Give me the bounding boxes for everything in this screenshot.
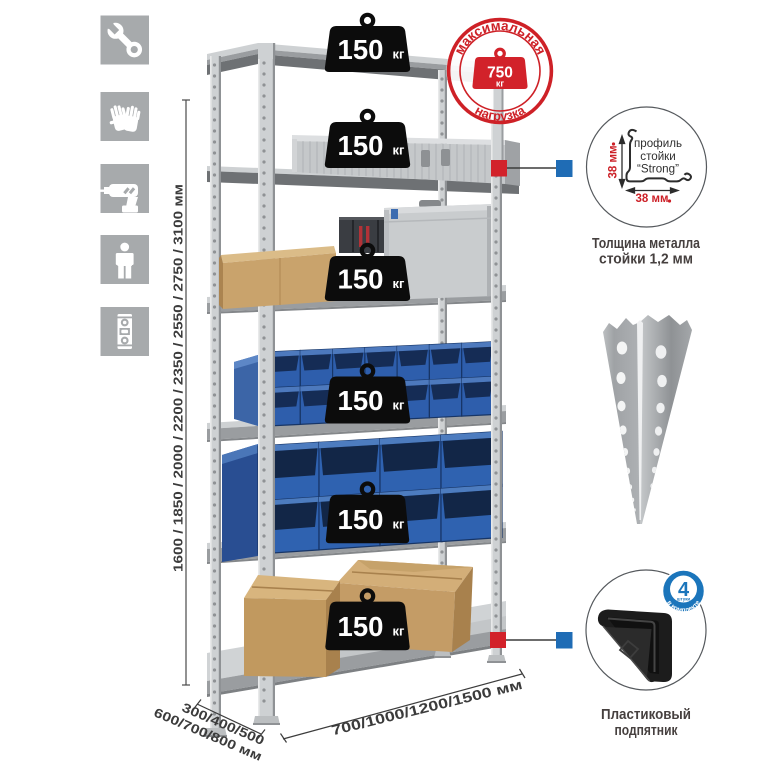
svg-text:стойки: стойки [640,150,675,163]
svg-text:штуки: штуки [677,597,691,602]
svg-text:кг: кг [393,623,406,638]
svg-text:кг: кг [393,276,406,291]
svg-text:Толщина металла: Толщина металла [592,236,701,252]
svg-text:Пластиковый: Пластиковый [601,707,691,723]
svg-text:кг: кг [496,79,505,89]
svg-text:подпятник: подпятник [615,723,679,739]
svg-text:кг: кг [393,398,406,413]
svg-text:кг: кг [393,47,406,62]
svg-text:“Strong”: “Strong” [637,163,679,176]
svg-text:1600 / 1850 / 2000 / 2200 / 23: 1600 / 1850 / 2000 / 2200 / 2350 / 2550 … [172,184,186,572]
svg-text:профиль: профиль [634,137,682,150]
svg-text:38 мм: 38 мм [608,145,620,178]
svg-text:150: 150 [338,130,384,161]
svg-text:150: 150 [338,385,384,416]
svg-text:кг: кг [393,517,406,532]
svg-text:стойки 1,2 мм: стойки 1,2 мм [599,252,693,268]
svg-text:150: 150 [338,264,384,295]
svg-text:150: 150 [338,34,384,65]
svg-text:150: 150 [338,504,384,535]
svg-text:150: 150 [338,611,384,642]
svg-text:38 мм: 38 мм [635,193,668,205]
svg-text:кг: кг [393,143,406,158]
